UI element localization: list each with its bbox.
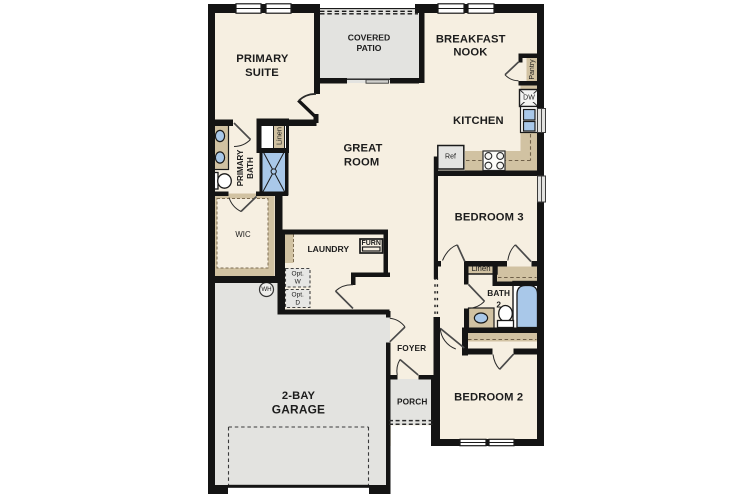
- svg-text:2: 2: [496, 299, 501, 309]
- svg-text:PRIMARY: PRIMARY: [236, 53, 289, 65]
- svg-text:Ref: Ref: [445, 153, 456, 160]
- svg-text:NOOK: NOOK: [453, 47, 487, 59]
- svg-text:BEDROOM 3: BEDROOM 3: [455, 212, 524, 224]
- svg-text:GARAGE: GARAGE: [272, 403, 325, 417]
- svg-text:FURN: FURN: [361, 240, 380, 247]
- svg-text:Opt.: Opt.: [292, 271, 304, 278]
- svg-text:WIC: WIC: [235, 230, 251, 239]
- svg-text:PATIO: PATIO: [357, 43, 382, 53]
- svg-text:KITCHEN: KITCHEN: [453, 115, 504, 127]
- svg-text:ROOM: ROOM: [344, 156, 379, 168]
- svg-text:PORCH: PORCH: [397, 397, 427, 407]
- svg-text:WH: WH: [261, 286, 271, 293]
- svg-text:BEDROOM 2: BEDROOM 2: [454, 391, 523, 403]
- svg-text:LAUNDRY: LAUNDRY: [307, 244, 349, 254]
- svg-text:SUITE: SUITE: [245, 67, 279, 79]
- svg-text:Opt.: Opt.: [292, 291, 304, 298]
- svg-text:BATH: BATH: [487, 288, 510, 298]
- svg-text:2-BAY: 2-BAY: [282, 390, 316, 402]
- svg-text:D: D: [295, 299, 300, 306]
- svg-text:DW: DW: [523, 95, 535, 102]
- svg-text:Linen: Linen: [275, 127, 284, 145]
- svg-text:GREAT: GREAT: [343, 143, 382, 155]
- svg-text:FOYER: FOYER: [397, 343, 426, 353]
- svg-text:BREAKFAST: BREAKFAST: [436, 33, 506, 45]
- svg-text:COVERED: COVERED: [348, 32, 391, 42]
- svg-text:PRIMARY: PRIMARY: [236, 149, 245, 186]
- svg-text:BATH: BATH: [246, 157, 255, 179]
- svg-text:W: W: [295, 279, 302, 286]
- svg-text:Pantry: Pantry: [529, 59, 536, 80]
